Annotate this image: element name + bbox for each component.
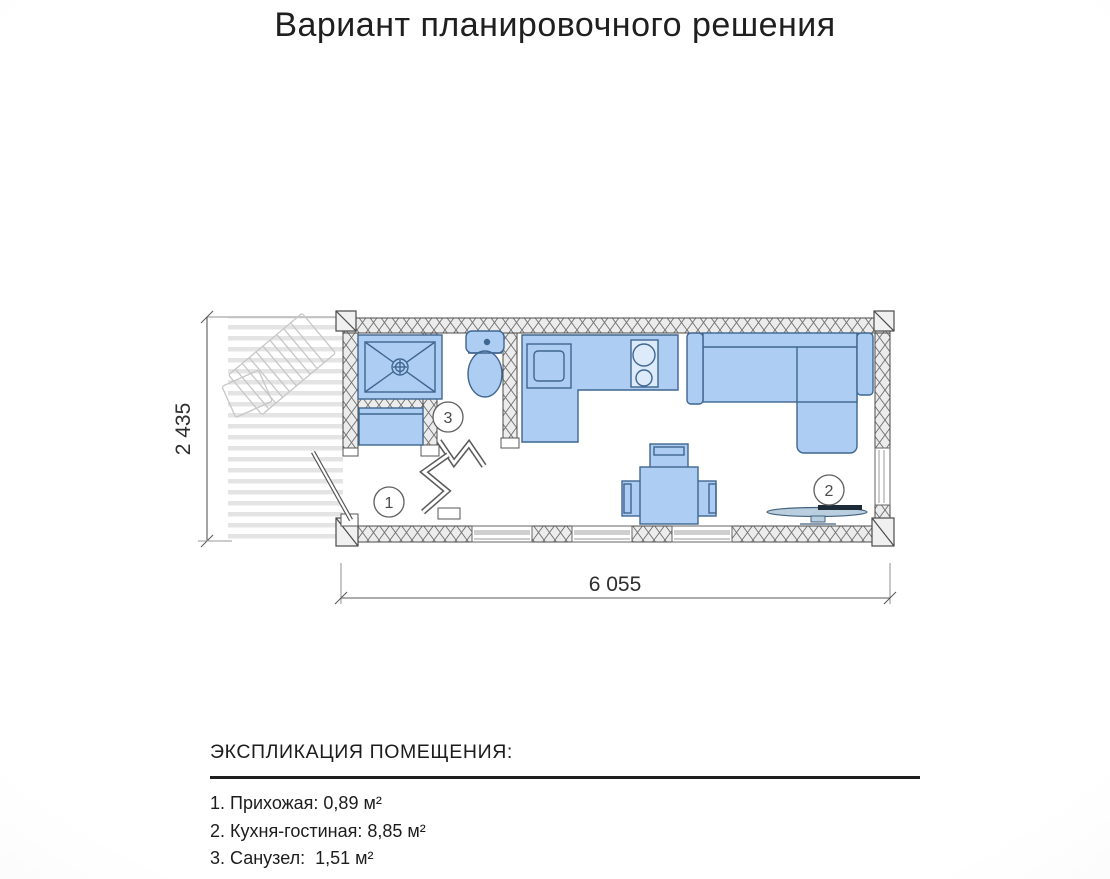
chair-top <box>650 444 688 469</box>
svg-text:2: 2 <box>825 483 834 500</box>
explication-heading: ЭКСПЛИКАЦИЯ ПОМЕЩЕНИЯ: <box>210 741 922 764</box>
washing-machine <box>359 408 423 445</box>
room-marker-bath: 3 <box>433 402 463 432</box>
dimension-height: 2 435 <box>172 311 232 547</box>
sofa-seat <box>703 333 857 402</box>
hob <box>631 340 658 387</box>
explication-item-bath: 3. Санузел: 1,51 м² <box>210 845 922 873</box>
window-east <box>875 448 890 505</box>
sofa-armrest-right <box>857 333 873 395</box>
floor-plan: 1 2 3 2 435 6 055 <box>170 300 920 620</box>
sofa-armrest-left <box>687 333 703 404</box>
window-south-1 <box>472 526 532 542</box>
page: Вариант планировочного решения <box>0 0 1110 879</box>
svg-text:2 435: 2 435 <box>172 403 195 456</box>
dining-table <box>640 467 698 524</box>
explication: ЭКСПЛИКАЦИЯ ПОМЕЩЕНИЯ: 1. Прихожая: 0,89… <box>210 741 922 873</box>
toilet <box>466 331 504 397</box>
dimension-width: 6 055 <box>335 563 896 604</box>
window-south-3 <box>672 526 732 542</box>
deck <box>207 317 343 540</box>
explication-divider <box>210 776 920 779</box>
chair-right <box>696 481 716 516</box>
chair-left <box>622 481 642 516</box>
room-marker-living: 2 <box>814 475 844 505</box>
shower-tray <box>358 335 442 399</box>
svg-text:3: 3 <box>444 410 453 427</box>
page-title: Вариант планировочного решения <box>0 6 1110 45</box>
window-south-2 <box>572 526 632 542</box>
explication-item-hallway: 1. Прихожая: 0,89 м² <box>210 790 922 818</box>
svg-text:1: 1 <box>385 495 394 512</box>
explication-item-living: 2. Кухня-гостиная: 8,85 м² <box>210 818 922 846</box>
tv <box>818 505 862 510</box>
room-marker-hallway: 1 <box>374 487 404 517</box>
explication-list: 1. Прихожая: 0,89 м² 2. Кухня-гостиная: … <box>210 790 922 873</box>
svg-text:6 055: 6 055 <box>589 573 642 596</box>
